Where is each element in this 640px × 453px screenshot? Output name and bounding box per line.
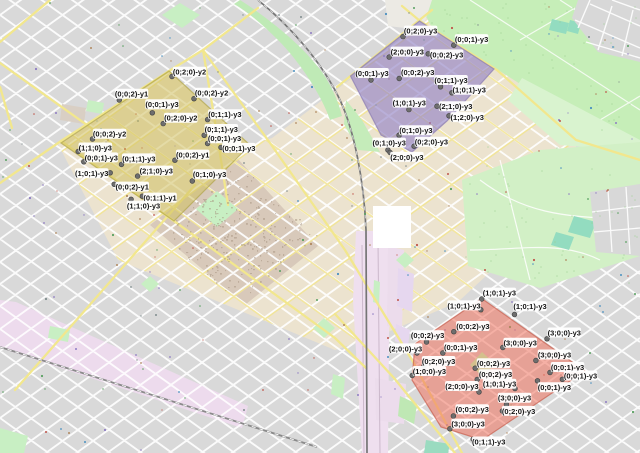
svg-text:(2;0;0)-y3: (2;0;0)-y3 [390, 153, 423, 162]
svg-text:(2;1;0)-y3: (2;1;0)-y3 [140, 167, 173, 176]
svg-text:(0;0;1)-y3: (0;0;1)-y3 [85, 153, 118, 162]
svg-text:(1;0;1)-y3: (1;0;1)-y3 [453, 86, 486, 95]
svg-text:(0;0;1)-y3: (0;0;1)-y3 [538, 383, 571, 392]
svg-text:(0;0;1)-y3: (0;0;1)-y3 [455, 35, 488, 44]
svg-text:(2;0;0)-y3: (2;0;0)-y3 [389, 344, 422, 353]
svg-text:(0;1;0)-y3: (0;1;0)-y3 [399, 126, 432, 135]
svg-text:(1;0;1)-y3: (1;0;1)-y3 [393, 99, 426, 108]
svg-text:(0;2;0)-y3: (0;2;0)-y3 [404, 27, 437, 36]
svg-text:(0;0;2)-y3: (0;0;2)-y3 [430, 50, 463, 59]
svg-text:(1;0;1)-y3: (1;0;1)-y3 [513, 302, 546, 311]
svg-text:(0;0;2)-y3: (0;0;2)-y3 [401, 68, 434, 77]
svg-text:(0;0;2)-y3: (0;0;2)-y3 [411, 331, 444, 340]
svg-text:(0;0;2)-y1: (0;0;2)-y1 [176, 151, 209, 160]
svg-text:(1;1;0)-y3: (1;1;0)-y3 [79, 143, 112, 152]
svg-text:(3;0;0)-y3: (3;0;0)-y3 [451, 420, 484, 429]
svg-text:(2;0;0)-y3: (2;0;0)-y3 [445, 382, 478, 391]
svg-text:(0;1;0)-y3: (0;1;0)-y3 [373, 139, 406, 148]
svg-text:(0;0;2)-y1: (0;0;2)-y1 [116, 183, 149, 192]
svg-text:(1;2;0)-y3: (1;2;0)-y3 [451, 113, 484, 122]
svg-text:(0;1;1)-y3: (0;1;1)-y3 [434, 76, 467, 85]
svg-text:(0;1;1)-y3: (0;1;1)-y3 [208, 110, 241, 119]
svg-text:(0;1;1)-y3: (0;1;1)-y3 [472, 437, 505, 446]
svg-text:(0;0;2)-y3: (0;0;2)-y3 [477, 359, 510, 368]
svg-text:(0;2;0)-y3: (0;2;0)-y3 [502, 407, 535, 416]
svg-text:(0;1;1)-y3: (0;1;1)-y3 [205, 125, 238, 134]
svg-text:(0;2;0)-y2: (0;2;0)-y2 [164, 114, 197, 123]
svg-text:(1;0;1)-y3: (1;0;1)-y3 [447, 301, 480, 310]
svg-text:(0;1;0)-y3: (0;1;0)-y3 [193, 170, 226, 179]
svg-text:(0;0;1)-y3: (0;0;1)-y3 [444, 343, 477, 352]
svg-text:(0;0;2)-y3: (0;0;2)-y3 [456, 405, 489, 414]
svg-text:(0;2;0)-y2: (0;2;0)-y2 [173, 68, 206, 77]
svg-text:(0;0;1)-y3: (0;0;1)-y3 [564, 371, 597, 380]
svg-text:(0;0;1)-y3: (0;0;1)-y3 [222, 144, 255, 153]
svg-text:(3;0;0)-y3: (3;0;0)-y3 [504, 339, 537, 348]
svg-text:(1;0;0)-y3: (1;0;0)-y3 [413, 367, 446, 376]
svg-text:(0;0;2)-y3: (0;0;2)-y3 [479, 370, 512, 379]
svg-text:(1;0;1)-y3: (1;0;1)-y3 [483, 380, 516, 389]
svg-text:(3;0;0)-y3: (3;0;0)-y3 [538, 350, 571, 359]
svg-text:(3;0;0)-y3: (3;0;0)-y3 [498, 394, 531, 403]
svg-text:(0;0;1)-y3: (0;0;1)-y3 [208, 134, 241, 143]
svg-text:(0;0;1)-y3: (0;0;1)-y3 [355, 69, 388, 78]
svg-text:(1;1;0)-y3: (1;1;0)-y3 [127, 202, 160, 211]
svg-text:(0;0;2)-y2: (0;0;2)-y2 [195, 89, 228, 98]
svg-text:(1;0;1)-y3: (1;0;1)-y3 [483, 289, 516, 298]
svg-text:(2;0;0)-y3: (2;0;0)-y3 [391, 48, 424, 57]
svg-text:(0;2;0)-y3: (0;2;0)-y3 [415, 138, 448, 147]
svg-text:(0;1;1)-y3: (0;1;1)-y3 [122, 154, 155, 163]
svg-text:(0;2;0)-y3: (0;2;0)-y3 [422, 357, 455, 366]
svg-text:(0;0;2)-y1: (0;0;2)-y1 [115, 90, 148, 99]
svg-text:(1;0;1)-y3: (1;0;1)-y3 [75, 169, 108, 178]
svg-text:(2;1;0)-y3: (2;1;0)-y3 [439, 102, 472, 111]
svg-text:(0;0;2)-y3: (0;0;2)-y3 [456, 322, 489, 331]
svg-text:(3;0;0)-y3: (3;0;0)-y3 [548, 328, 581, 337]
svg-text:(0;0;1)-y3: (0;0;1)-y3 [145, 100, 178, 109]
svg-text:(0;0;2)-y2: (0;0;2)-y2 [93, 130, 126, 139]
